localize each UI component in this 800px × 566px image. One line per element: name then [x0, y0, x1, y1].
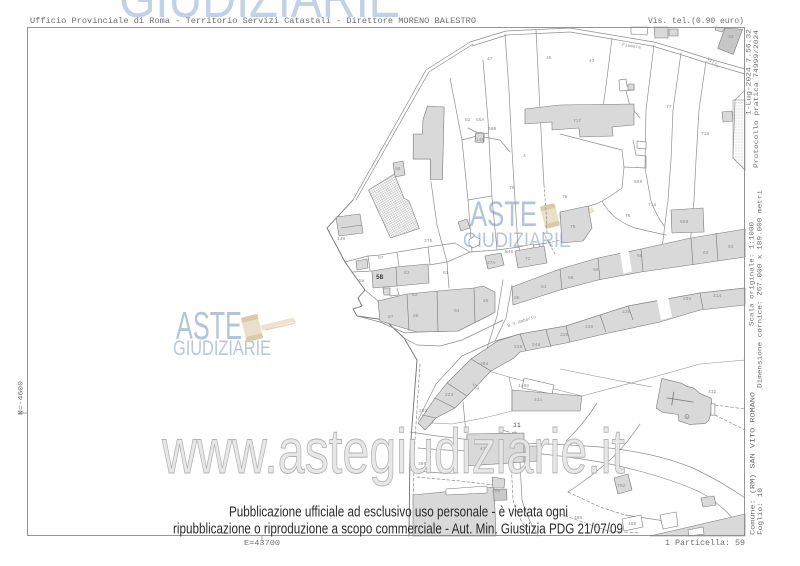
svg-text:223: 223 — [445, 392, 454, 398]
svg-text:77: 77 — [666, 104, 672, 110]
svg-text:47: 47 — [487, 56, 493, 62]
svg-text:45: 45 — [546, 55, 552, 61]
svg-text:81: 81 — [541, 284, 547, 290]
svg-text:88: 88 — [413, 313, 419, 319]
svg-text:238: 238 — [585, 324, 594, 330]
svg-text:405: 405 — [574, 515, 583, 521]
svg-text:1408: 1408 — [518, 383, 529, 389]
svg-text:658: 658 — [680, 219, 689, 225]
svg-text:75: 75 — [570, 224, 576, 230]
svg-text:E=43700: E=43700 — [244, 540, 281, 548]
svg-text:47A: 47A — [487, 260, 496, 266]
svg-text:63: 63 — [412, 292, 418, 298]
svg-text:www.astegiudiziarie.it: www.astegiudiziarie.it — [161, 417, 625, 487]
svg-text:N=-4600: N=-4600 — [18, 381, 25, 415]
svg-text:Ufficio Provinciale di Roma -: Ufficio Provinciale di Roma - Territorio… — [30, 16, 476, 26]
svg-text:717: 717 — [573, 118, 582, 124]
svg-text:68: 68 — [568, 275, 574, 281]
svg-text:50B: 50B — [488, 126, 497, 132]
svg-text:412: 412 — [708, 389, 717, 395]
svg-text:87: 87 — [388, 314, 394, 320]
svg-text:4: 4 — [523, 153, 526, 159]
svg-text:78: 78 — [562, 194, 568, 200]
svg-text:69: 69 — [593, 267, 599, 273]
svg-text:58: 58 — [395, 166, 401, 172]
svg-text:B.V.Umberto: B.V.Umberto — [507, 314, 537, 329]
svg-text:43: 43 — [589, 58, 595, 64]
svg-text:66: 66 — [637, 253, 643, 259]
svg-text:140: 140 — [337, 236, 346, 242]
svg-text:1 Particella: 59: 1 Particella: 59 — [665, 539, 745, 548]
svg-text:Comune: (RM) SAN VITO ROMANO: Comune: (RM) SAN VITO ROMANO — [750, 391, 757, 535]
svg-text:63: 63 — [728, 244, 734, 250]
svg-text:5a: 5a — [359, 278, 365, 284]
svg-text:33: 33 — [728, 34, 734, 40]
svg-text:61: 61 — [443, 270, 449, 276]
svg-text:248: 248 — [532, 342, 541, 348]
svg-text:52: 52 — [465, 117, 471, 123]
svg-text:97: 97 — [378, 255, 384, 261]
svg-text:Vis. tel.(0.90 euro): Vis. tel.(0.90 euro) — [648, 16, 744, 26]
svg-text:B48: B48 — [505, 249, 514, 255]
svg-text:214: 214 — [713, 293, 722, 299]
svg-text:64: 64 — [454, 308, 460, 314]
svg-text:659: 659 — [634, 179, 643, 185]
svg-text:76: 76 — [625, 213, 631, 219]
svg-text:ripubblicazione o riproduzione: ripubblicazione o riproduzione a scopo c… — [173, 522, 623, 538]
svg-text:Dimensione cornice: 267.000 x: Dimensione cornice: 267.000 x 189.000 me… — [757, 189, 764, 388]
svg-text:63: 63 — [404, 270, 410, 276]
svg-text:146: 146 — [476, 137, 485, 143]
svg-text:Foglio: 10: Foglio: 10 — [757, 487, 764, 535]
svg-text:70: 70 — [509, 185, 515, 191]
svg-text:Pubblicazione ufficiale ad esc: Pubblicazione ufficiale ad esclusivo uso… — [229, 505, 568, 521]
svg-text:Protocollo pratica 74999/2024: Protocollo pratica 74999/2024 — [753, 29, 760, 168]
svg-text:56A: 56A — [476, 117, 485, 123]
svg-text:62: 62 — [703, 250, 709, 256]
svg-text:714: 714 — [648, 202, 657, 208]
svg-text:Villa: Villa — [706, 56, 720, 69]
svg-text:1-Lug-2024 7.56.32: 1-Lug-2024 7.56.32 — [746, 28, 753, 115]
svg-text:85: 85 — [483, 298, 489, 304]
svg-text:375: 375 — [424, 238, 433, 244]
svg-text:Scala originale: 1:1000: Scala originale: 1:1000 — [749, 222, 756, 326]
svg-text:72: 72 — [525, 256, 531, 262]
svg-text:718: 718 — [701, 131, 710, 137]
svg-text:228: 228 — [560, 332, 569, 338]
svg-text:203: 203 — [419, 408, 428, 414]
svg-text:409: 409 — [628, 521, 637, 527]
svg-text:225: 225 — [514, 344, 523, 350]
svg-text:304: 304 — [480, 361, 489, 367]
svg-text:203: 203 — [683, 296, 692, 302]
svg-text:5B: 5B — [376, 274, 384, 281]
svg-text:411: 411 — [534, 397, 543, 403]
svg-text:226: 226 — [622, 309, 631, 315]
svg-text:86: 86 — [514, 295, 520, 301]
svg-text:405: 405 — [492, 488, 501, 494]
